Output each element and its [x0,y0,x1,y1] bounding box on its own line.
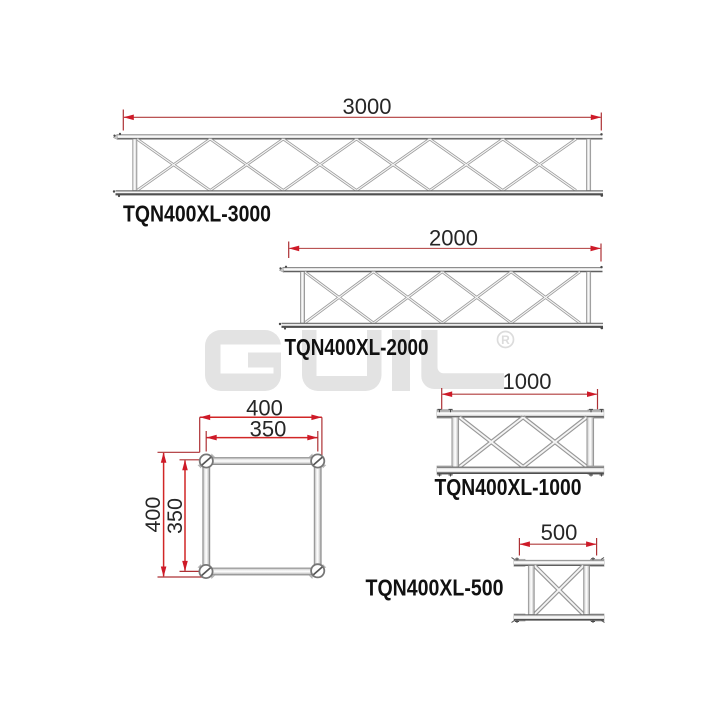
svg-text:2000: 2000 [429,225,478,250]
svg-text:1000: 1000 [503,369,552,394]
svg-text:TQN400XL-500: TQN400XL-500 [366,575,504,601]
svg-text:350: 350 [163,498,187,534]
svg-text:R: R [501,333,510,347]
svg-text:TQN400XL-1000: TQN400XL-1000 [435,474,582,500]
svg-text:500: 500 [541,520,578,545]
svg-text:TQN400XL-2000: TQN400XL-2000 [285,334,429,360]
svg-text:TQN400XL-3000: TQN400XL-3000 [123,201,271,227]
svg-text:400: 400 [141,497,165,533]
svg-text:3000: 3000 [343,94,392,119]
